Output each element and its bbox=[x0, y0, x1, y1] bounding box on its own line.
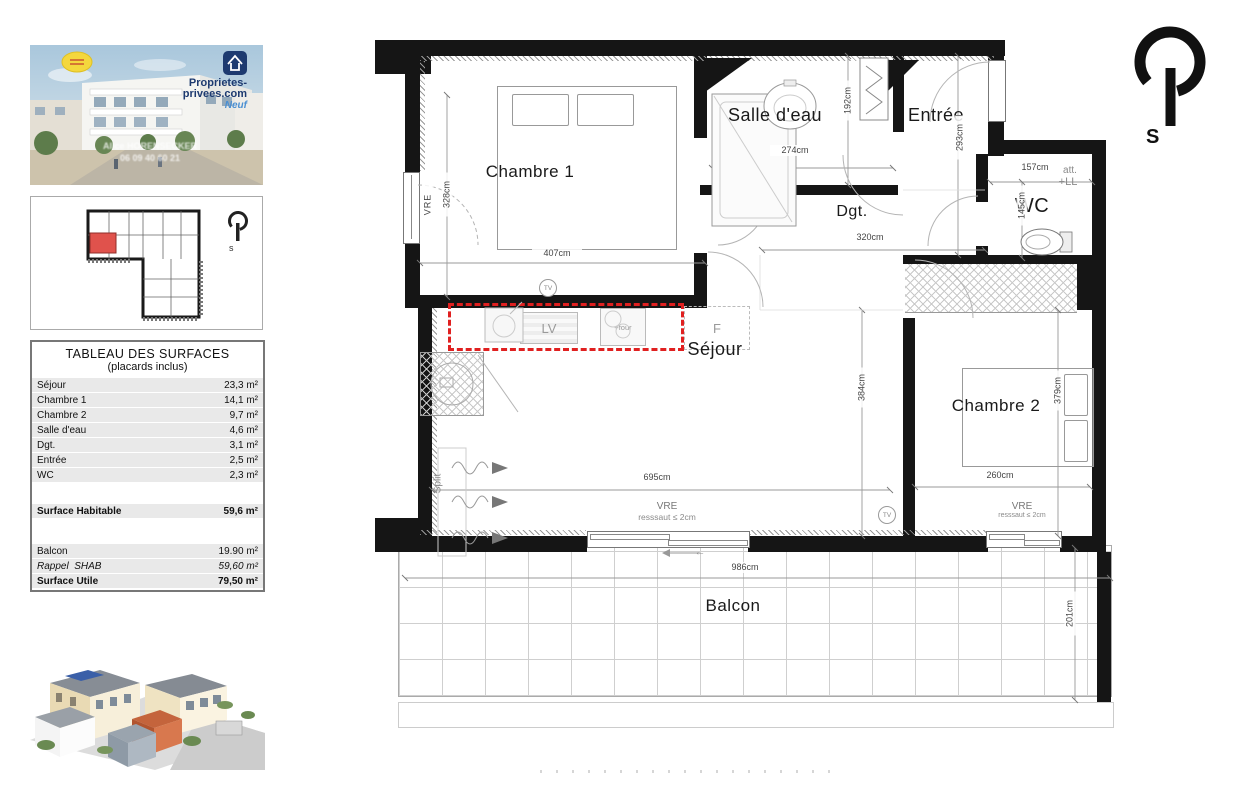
tv-label: TV bbox=[544, 285, 552, 292]
table-spacer bbox=[32, 483, 263, 504]
tv-outlet-icon: TV bbox=[539, 279, 557, 297]
building-photo: Proprietes- privees.com Neuf Alice HOREN… bbox=[30, 45, 263, 185]
dim-157: 157cm bbox=[1011, 162, 1059, 173]
table-row: Entrée2,5 m² bbox=[32, 453, 263, 468]
brand-house-icon bbox=[223, 51, 247, 75]
locator-compass-letter: s bbox=[229, 243, 234, 253]
room-label-wc: WC bbox=[992, 195, 1072, 218]
highlighted-unit bbox=[90, 233, 116, 253]
row-label: Entrée bbox=[37, 455, 66, 466]
dim-986: 986cm bbox=[720, 562, 770, 573]
table-row: Chambre 29,7 m² bbox=[32, 408, 263, 423]
room-label-sejour: Séjour bbox=[655, 339, 775, 360]
dim-695: 695cm bbox=[632, 472, 682, 483]
building-photo-art bbox=[30, 45, 263, 185]
row-value: 59,6 m² bbox=[224, 506, 258, 517]
vre-label-chambre2: VRE bbox=[992, 501, 1052, 512]
row-value: 23,3 m² bbox=[224, 380, 258, 391]
dim-274: 274cm bbox=[770, 145, 820, 156]
row-label: Chambre 2 bbox=[37, 410, 86, 421]
ressaut-label-chambre2: resssaut ≤ 2cm bbox=[982, 512, 1062, 519]
hob-icon bbox=[605, 311, 630, 338]
split-label: Split bbox=[433, 464, 444, 504]
dim-384: 384cm bbox=[857, 368, 868, 408]
row-value: 59,60 m² bbox=[219, 561, 258, 572]
dim-260: 260cm bbox=[975, 470, 1025, 481]
axonometric-art bbox=[20, 645, 270, 770]
table-row: Salle d'eau4,6 m² bbox=[32, 423, 263, 438]
watermark-phone: 06 09 40 60 21 bbox=[75, 152, 225, 164]
axonometric-rendering bbox=[20, 645, 270, 770]
compass-icon bbox=[1128, 20, 1208, 145]
row-label: Salle d'eau bbox=[37, 425, 86, 436]
building-locator-plan: s bbox=[30, 196, 263, 330]
surface-table-subtitle: (placards inclus) bbox=[32, 361, 263, 373]
surface-table: TABLEAU DES SURFACES (placards inclus) S… bbox=[30, 340, 265, 592]
toilet-icon bbox=[1021, 229, 1072, 255]
row-value: 4,6 m² bbox=[230, 425, 258, 436]
table-row-balcon: Balcon19.90 m² bbox=[32, 544, 263, 559]
vre-label-window1: VRE bbox=[423, 185, 434, 225]
table-row-surface-utile: Surface Utile79,50 m² bbox=[32, 574, 263, 589]
room-label-chambre1: Chambre 1 bbox=[440, 162, 620, 182]
row-value: 2,3 m² bbox=[230, 470, 258, 481]
dim-192: 192cm bbox=[843, 81, 854, 121]
brand-badge-neuf: Neuf bbox=[165, 100, 247, 111]
brand-wordmark: Proprietes- privees.com Neuf bbox=[165, 78, 247, 111]
table-row: Chambre 114,1 m² bbox=[32, 393, 263, 408]
table-row-rappel-shab: Rappel SHAB59,60 m² bbox=[32, 559, 263, 574]
row-label: Séjour bbox=[37, 380, 66, 391]
row-value: 14,1 m² bbox=[224, 395, 258, 406]
room-label-entree: Entrée bbox=[876, 105, 996, 126]
bottom-tick-marks bbox=[540, 770, 840, 773]
split-airflow-arrows bbox=[438, 448, 508, 556]
row-value: 19.90 m² bbox=[219, 546, 258, 557]
vre-label-sejour: VRE bbox=[637, 501, 697, 512]
room-label-dgt: Dgt. bbox=[812, 203, 892, 221]
ll-label: +LL bbox=[1046, 176, 1090, 188]
row-value: 79,50 m² bbox=[218, 576, 258, 587]
row-value: 2,5 m² bbox=[230, 455, 258, 466]
floor-plan-page: Proprietes- privees.com Neuf Alice HOREN… bbox=[0, 0, 1233, 800]
brand-line2: privees.com bbox=[165, 89, 247, 100]
row-value: 3,1 m² bbox=[230, 440, 258, 451]
yellow-oval-logo bbox=[62, 52, 92, 72]
row-label: Balcon bbox=[37, 546, 68, 557]
row-label: Chambre 1 bbox=[37, 395, 86, 406]
ressaut-label-sejour: resssaut ≤ 2cm bbox=[617, 512, 717, 522]
tv-label: TV bbox=[883, 512, 891, 519]
dim-145: 145cm bbox=[1017, 186, 1028, 226]
kitchen-sink-icon bbox=[485, 302, 523, 342]
row-label: WC bbox=[37, 470, 54, 481]
room-label-salle-eau: Salle d'eau bbox=[695, 105, 855, 126]
table-row: WC2,3 m² bbox=[32, 468, 263, 483]
slide-arrow-label: ← bbox=[685, 546, 715, 558]
row-label: Surface Habitable bbox=[37, 506, 121, 517]
watermark-name: Alice HORENSECKER bbox=[75, 140, 225, 152]
dim-201: 201cm bbox=[1065, 592, 1076, 636]
dim-407: 407cm bbox=[532, 248, 582, 259]
locator-plan-art bbox=[31, 197, 262, 329]
compass-letter: S bbox=[1146, 126, 1159, 149]
table-spacer bbox=[32, 519, 263, 544]
agent-watermark: Alice HORENSECKER 06 09 40 60 21 bbox=[75, 140, 225, 164]
water-heater-icon bbox=[431, 363, 473, 405]
row-value: 9,7 m² bbox=[230, 410, 258, 421]
tv-outlet-icon: TV bbox=[878, 506, 896, 524]
table-row: Dgt.3,1 m² bbox=[32, 438, 263, 453]
row-label: Rappel SHAB bbox=[37, 561, 101, 572]
dim-379: 379cm bbox=[1053, 371, 1064, 411]
row-label: Dgt. bbox=[37, 440, 55, 451]
table-row-habitable: Surface Habitable59,6 m² bbox=[32, 504, 263, 519]
dim-320: 320cm bbox=[845, 232, 895, 243]
room-label-balcon: Balcon bbox=[653, 596, 813, 616]
row-label: Surface Utile bbox=[37, 576, 98, 587]
dim-328: 328cm bbox=[442, 173, 453, 217]
table-row: Séjour23,3 m² bbox=[32, 378, 263, 393]
dim-293: 293cm bbox=[955, 116, 966, 160]
surface-table-title: TABLEAU DES SURFACES bbox=[32, 347, 263, 361]
locator-compass-icon bbox=[226, 209, 250, 241]
